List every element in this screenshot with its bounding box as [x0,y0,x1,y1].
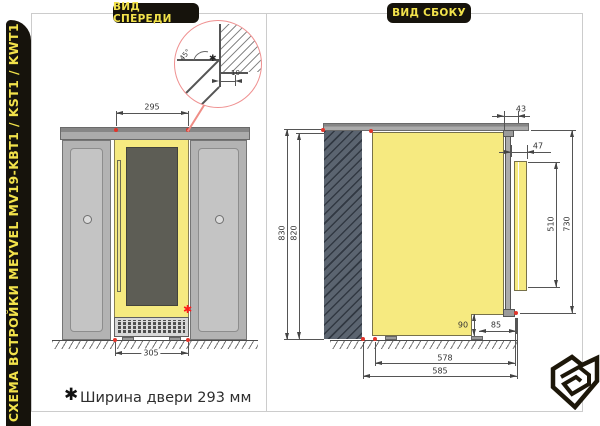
ref-dot [321,128,325,132]
door-knob [83,215,92,224]
arrowhead [181,111,188,115]
dim-line-510 [556,162,557,287]
extension-line [528,287,560,288]
dim-niche-height: 820 [290,225,299,240]
door-knob [215,215,224,224]
dim-line-295 [116,113,188,114]
cabinet-door-right [190,140,247,340]
extension-line [515,318,516,366]
door-panel-inset [70,148,103,332]
corner-detail-callout: 45° ✱ 10 [174,20,262,108]
dim-top-inset: 43 [516,105,526,114]
wall-section [324,131,362,339]
dim-plinth-depth: 85 [491,321,501,330]
dim-bottom-width: 305 [141,349,160,358]
arrowhead [472,314,476,321]
dim-door-panel-height: 510 [547,216,556,231]
dim-line-730 [572,130,573,313]
arrowhead [554,280,558,287]
extension-line [284,129,323,130]
arrowhead [235,79,242,83]
dim-line-830 [287,129,288,340]
wine-cooler-glass-door [126,147,178,306]
scheme-title-bar: СХЕМА ВСТРОЙКИ MEYVEL MV19-KBT1 / KST1 /… [6,20,31,426]
dim-line-585 [363,376,517,377]
arrowhead [285,129,289,136]
ref-dot [361,337,365,341]
arrowhead [570,306,574,313]
front-view-label: ВИД СПЕРЕДИ [113,3,199,23]
dim-total-depth: 585 [432,367,447,376]
ventilation-grille [114,317,189,337]
ref-dot [373,337,377,341]
footnote-text: Ширина двери 293 мм [80,390,251,406]
cooler-door-side [505,134,511,316]
arrowhead [518,114,525,118]
arrowhead [375,361,382,365]
footnote-star-marker: ✱ [183,304,192,315]
cabinet-door-left [62,140,111,340]
extension-line [517,318,518,379]
arrowhead [510,374,517,378]
top-hinge [503,130,514,137]
extension-line [188,342,189,356]
footnote-star: ✱ [64,387,78,404]
extension-line [511,145,512,157]
extension-line [188,111,189,126]
arrowhead [504,150,511,154]
arrowhead [363,374,370,378]
dim-gap: 10 [231,69,240,77]
niche-edge-line [219,24,221,87]
arrowhead [116,111,123,115]
dim-niche-width: 295 [144,103,159,112]
dim-line-578 [375,363,515,364]
dim-line-10 [219,81,235,82]
dim-body-depth: 578 [437,354,452,363]
cooler-body-side [372,132,504,336]
extension-line [284,339,324,340]
door-decor-panel [514,161,527,291]
ref-dot [114,128,118,132]
dim-door-height: 730 [563,216,572,231]
arrowhead [554,162,558,169]
installation-scheme-page: СХЕМА ВСТРОЙКИ MEYVEL MV19-KBT1 / KST1 /… [0,0,600,426]
side-view-label: ВИД СБОКУ [387,3,471,23]
floor-hatch [330,340,518,349]
door-panel-inset [198,148,239,332]
extension-line [504,111,505,130]
dim-total-height: 830 [278,225,287,240]
arrowhead [479,329,486,333]
arrowhead [285,333,289,340]
arrowhead [570,130,574,137]
door-handle [117,160,121,292]
arrowhead [527,150,534,154]
ref-dot [113,338,117,342]
arrowhead [181,351,188,355]
dim-line-820 [299,133,300,339]
detail-star-marker: ✱ [209,55,217,64]
arrowhead [508,361,515,365]
meyvel-logo-icon [546,354,600,410]
dim-plinth-height: 90 [458,321,468,330]
arrowhead [497,114,504,118]
scheme-title: СХЕМА ВСТРОЙКИ MEYVEL MV19-KBT1 / KST1 /… [6,14,21,426]
arrowhead [297,332,301,339]
arrowhead [212,79,219,83]
ref-dot [514,311,518,315]
dim-door-clearance: 47 [533,142,543,151]
arrowhead [297,133,301,140]
countertop-front [60,127,250,140]
extension-line [520,313,576,314]
ref-dot [186,338,190,342]
arrowhead [472,329,476,336]
arrowhead [115,351,122,355]
ref-dot [369,129,373,133]
wall-section-hatch [220,24,262,72]
countertop-side [323,123,529,131]
views-divider [266,13,267,411]
